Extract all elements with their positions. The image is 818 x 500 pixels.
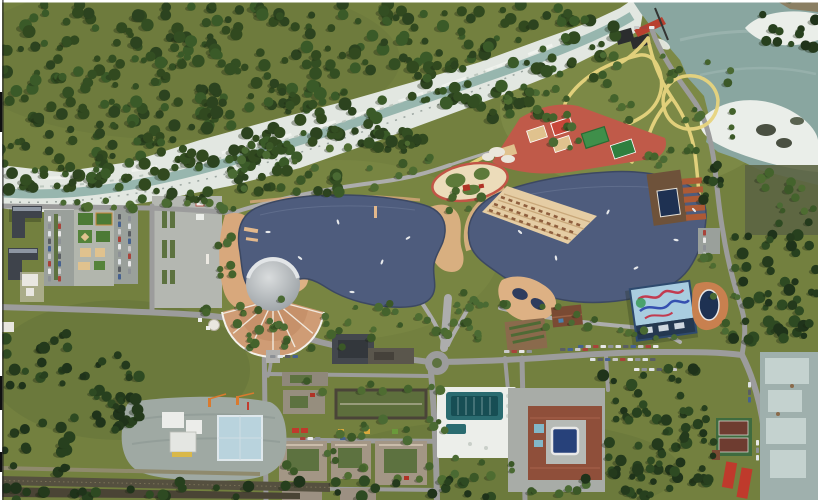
tree — [244, 102, 254, 112]
tree — [446, 207, 454, 215]
tree — [634, 442, 642, 450]
tree — [688, 363, 699, 374]
tree — [228, 270, 236, 278]
tree — [713, 161, 722, 170]
tree — [608, 468, 617, 477]
street-playground — [292, 428, 299, 433]
spa-pool — [534, 424, 544, 433]
tree — [728, 333, 739, 344]
tree — [788, 41, 794, 47]
tree — [693, 473, 703, 483]
tree — [128, 32, 134, 38]
tree — [477, 302, 484, 309]
tree — [392, 308, 399, 315]
tree — [9, 364, 21, 376]
tree — [59, 380, 65, 386]
tree — [377, 95, 386, 104]
tree — [305, 171, 313, 179]
tree — [10, 85, 22, 97]
tree — [274, 127, 285, 138]
tree — [460, 289, 467, 296]
tree — [557, 71, 564, 78]
tree — [658, 450, 667, 459]
tree — [765, 290, 772, 297]
tree — [533, 105, 542, 114]
tree — [339, 52, 347, 60]
tree — [786, 233, 795, 242]
tree — [486, 471, 496, 481]
tree — [55, 422, 66, 433]
parked-car — [613, 358, 619, 361]
tree — [241, 185, 248, 192]
tree — [336, 430, 345, 439]
parked-car — [285, 355, 291, 358]
tree — [543, 90, 550, 97]
tree — [359, 465, 366, 472]
tree — [717, 182, 723, 188]
tree — [313, 186, 323, 196]
tree — [621, 485, 630, 494]
tree — [115, 59, 125, 69]
tree — [46, 101, 56, 111]
tree — [402, 13, 414, 25]
tree — [196, 149, 209, 162]
parked-car — [628, 358, 634, 361]
tree — [157, 147, 166, 156]
tree — [618, 327, 624, 333]
tree — [278, 88, 286, 96]
tree — [294, 114, 306, 126]
tree — [684, 147, 691, 154]
tree — [426, 154, 434, 162]
tree — [374, 303, 383, 312]
tree — [767, 267, 775, 275]
tree — [109, 68, 121, 80]
tree — [29, 13, 38, 22]
parked-car — [118, 222, 121, 228]
tree — [130, 95, 142, 107]
tree — [382, 307, 391, 316]
tree — [523, 96, 535, 108]
tree — [302, 59, 312, 69]
parked-car — [748, 397, 751, 403]
parked-car — [634, 26, 640, 29]
parked-car — [646, 345, 652, 348]
tree — [386, 300, 393, 307]
tree — [675, 377, 681, 383]
tree — [741, 262, 751, 272]
tree — [209, 83, 221, 95]
tree — [610, 94, 619, 103]
tree — [226, 261, 235, 270]
tree — [435, 385, 445, 395]
tree — [201, 122, 214, 135]
hotel-complex — [508, 388, 605, 492]
tree — [201, 197, 208, 204]
edge-tick — [0, 376, 2, 410]
tree — [692, 107, 697, 112]
parked-car — [118, 237, 121, 243]
tree — [42, 4, 48, 10]
tree — [804, 241, 814, 251]
parking-lot — [112, 210, 138, 284]
tree — [705, 59, 711, 65]
tree — [613, 416, 620, 423]
tree — [22, 368, 29, 375]
tree — [170, 43, 179, 52]
tree — [581, 16, 589, 24]
tree — [457, 28, 465, 36]
parked-car — [128, 224, 131, 230]
boat — [265, 231, 270, 233]
tree — [422, 38, 429, 45]
tree — [464, 490, 471, 497]
tree — [801, 40, 811, 50]
tree — [133, 371, 144, 382]
tree — [107, 140, 117, 150]
tree — [730, 134, 735, 139]
parked-car — [48, 261, 51, 267]
tree — [127, 485, 135, 493]
tree — [403, 436, 413, 446]
tree — [130, 36, 142, 48]
tree — [290, 467, 298, 475]
parked-car — [575, 348, 581, 351]
parked-car — [58, 231, 61, 237]
play-equipment — [462, 184, 470, 191]
tree — [344, 319, 351, 326]
tree — [632, 332, 637, 337]
tree — [92, 410, 102, 420]
tree — [589, 73, 599, 83]
tree — [464, 80, 472, 88]
tree — [121, 361, 130, 370]
tree — [627, 101, 634, 108]
parked-car — [293, 355, 299, 358]
tree — [10, 462, 17, 469]
tree — [632, 464, 644, 476]
tree — [533, 89, 540, 96]
tree — [763, 316, 775, 328]
tree — [167, 188, 178, 199]
tree — [765, 299, 773, 307]
parked-car — [58, 276, 61, 282]
tree — [202, 186, 213, 197]
tree — [22, 488, 31, 497]
parked-car — [649, 368, 655, 371]
parked-car — [642, 26, 648, 29]
parked-car — [643, 358, 649, 361]
tree — [349, 47, 361, 59]
tree — [132, 55, 139, 62]
tree — [667, 70, 673, 76]
tree — [60, 200, 66, 206]
tree — [723, 78, 732, 87]
tree — [38, 342, 50, 354]
tree — [607, 20, 619, 32]
tree — [65, 162, 75, 172]
edge-tick — [0, 452, 2, 472]
parked-car — [48, 239, 51, 245]
tree — [600, 52, 606, 58]
tree — [184, 200, 191, 207]
tree — [217, 272, 223, 278]
tree — [2, 349, 12, 359]
tree — [125, 174, 132, 181]
tree — [632, 407, 642, 417]
tree — [629, 474, 635, 480]
tree — [424, 317, 431, 324]
tree — [780, 208, 785, 213]
tree — [110, 122, 116, 128]
tree — [652, 438, 664, 450]
gazebo — [209, 320, 220, 331]
tree — [10, 482, 22, 494]
tree — [693, 147, 700, 154]
tree — [679, 433, 688, 442]
tree — [759, 11, 766, 18]
tree — [779, 333, 789, 343]
tree — [157, 489, 168, 500]
tree — [185, 35, 197, 47]
tree — [139, 158, 151, 170]
industrial-yard — [760, 352, 818, 500]
tree — [795, 29, 804, 38]
rock — [756, 124, 776, 136]
tree — [729, 108, 736, 115]
tree — [283, 140, 290, 147]
tree — [699, 465, 706, 472]
tree — [603, 79, 612, 88]
tree — [126, 374, 133, 381]
tree — [100, 100, 109, 109]
tree — [67, 126, 74, 133]
tree — [660, 53, 665, 58]
tree — [456, 308, 462, 314]
parked-car — [657, 368, 663, 371]
parked-car — [48, 216, 51, 222]
tree — [301, 41, 314, 54]
tree — [542, 323, 550, 331]
tree — [113, 403, 119, 409]
tree — [87, 70, 96, 79]
tree — [242, 147, 249, 154]
tree — [226, 120, 236, 130]
tree — [375, 129, 385, 139]
tree — [761, 184, 769, 192]
tree — [278, 296, 285, 303]
tree — [228, 169, 238, 179]
tree — [677, 392, 685, 400]
tree — [129, 121, 136, 128]
tree — [6, 167, 18, 179]
deck-pool — [657, 188, 680, 217]
tree — [615, 455, 626, 466]
tree — [246, 332, 251, 337]
tree — [443, 330, 452, 339]
tree — [361, 421, 367, 427]
tree — [701, 438, 707, 444]
parked-car — [756, 455, 759, 461]
tree — [731, 264, 739, 272]
tree — [509, 461, 515, 467]
parked-car — [48, 254, 51, 260]
tree — [146, 51, 156, 61]
tree — [370, 183, 378, 191]
tree — [235, 5, 244, 14]
parked-car — [118, 252, 121, 258]
tree — [381, 38, 389, 46]
parked-car — [118, 214, 121, 220]
tree — [599, 71, 607, 79]
tree — [548, 53, 557, 62]
tree — [477, 192, 487, 202]
tree — [395, 172, 402, 179]
tree — [79, 373, 86, 380]
tree — [283, 338, 290, 345]
parked-car — [118, 267, 121, 273]
tree — [54, 182, 61, 189]
parked-car — [649, 26, 655, 29]
tree — [710, 452, 717, 459]
tree — [557, 17, 567, 27]
tree — [331, 92, 340, 101]
tree — [63, 184, 71, 192]
tree — [452, 455, 459, 462]
edge-tick — [0, 92, 2, 132]
tree — [765, 168, 774, 177]
tree — [744, 232, 752, 240]
parked-car — [58, 216, 61, 222]
tree — [109, 153, 115, 159]
parked-car — [608, 345, 614, 348]
tree — [427, 489, 437, 499]
parked-car — [128, 216, 131, 222]
tree — [73, 169, 83, 179]
tree — [93, 166, 99, 172]
tree — [450, 319, 458, 327]
tree — [192, 55, 205, 68]
tree — [403, 426, 410, 433]
tree — [676, 457, 686, 467]
tree — [132, 83, 139, 90]
kiosk — [196, 214, 204, 220]
tree — [222, 26, 231, 35]
planter — [162, 210, 167, 228]
tree — [700, 253, 709, 262]
tree — [397, 322, 403, 328]
tree — [50, 336, 59, 345]
tree — [626, 379, 637, 390]
tree — [613, 61, 622, 70]
parked-car — [58, 246, 61, 252]
tree — [225, 16, 232, 23]
tree — [139, 178, 152, 191]
tree — [111, 204, 117, 210]
tree — [10, 428, 19, 437]
tree — [433, 61, 442, 70]
tree — [130, 393, 142, 405]
tree — [573, 311, 580, 318]
tree — [316, 113, 327, 124]
tree — [567, 145, 573, 151]
tree — [362, 59, 368, 65]
tree — [3, 183, 16, 196]
tree — [437, 20, 449, 32]
tree — [252, 135, 259, 142]
tree — [640, 372, 647, 379]
parked-car — [504, 350, 510, 353]
tree — [743, 334, 753, 344]
tree — [330, 68, 340, 78]
tree — [247, 337, 253, 343]
parked-car — [128, 231, 131, 237]
tree — [54, 153, 65, 164]
parked-car — [527, 350, 533, 353]
parked-car — [635, 358, 641, 361]
parked-car — [631, 345, 637, 348]
tree — [539, 46, 546, 53]
tree — [300, 130, 306, 136]
tree — [248, 93, 254, 99]
tree — [262, 151, 270, 159]
tree — [23, 25, 36, 38]
tree — [53, 54, 63, 64]
tree — [305, 28, 316, 39]
tree — [681, 423, 691, 433]
tree — [100, 168, 111, 179]
roundabout-island — [432, 358, 442, 368]
tree — [591, 316, 598, 323]
tree — [463, 318, 472, 327]
parked-car — [48, 269, 51, 275]
tree — [597, 369, 609, 381]
tree — [742, 317, 749, 324]
tree — [138, 194, 147, 203]
tree — [425, 462, 433, 470]
tree — [98, 357, 106, 365]
parked-car — [748, 382, 751, 388]
tree — [464, 39, 474, 49]
tree — [40, 170, 49, 179]
tree — [68, 136, 77, 145]
parked-car — [593, 345, 599, 348]
tree — [216, 202, 224, 210]
pier — [374, 206, 377, 218]
tree — [281, 323, 288, 330]
tree — [465, 303, 474, 312]
parked-car — [128, 261, 131, 267]
tree — [415, 313, 423, 321]
tree — [237, 155, 246, 164]
parked-car — [578, 345, 584, 348]
tree — [251, 77, 263, 89]
tree — [653, 335, 659, 341]
parked-car — [653, 345, 659, 348]
tree — [294, 476, 306, 488]
tree — [444, 478, 451, 485]
tree — [45, 130, 54, 139]
tree — [266, 142, 273, 149]
tree — [398, 159, 407, 168]
tree — [737, 247, 749, 259]
tree — [285, 101, 294, 110]
tree — [474, 330, 481, 337]
tree — [32, 167, 38, 173]
tree — [347, 433, 356, 442]
parked-car — [650, 358, 656, 361]
tree — [754, 292, 766, 304]
